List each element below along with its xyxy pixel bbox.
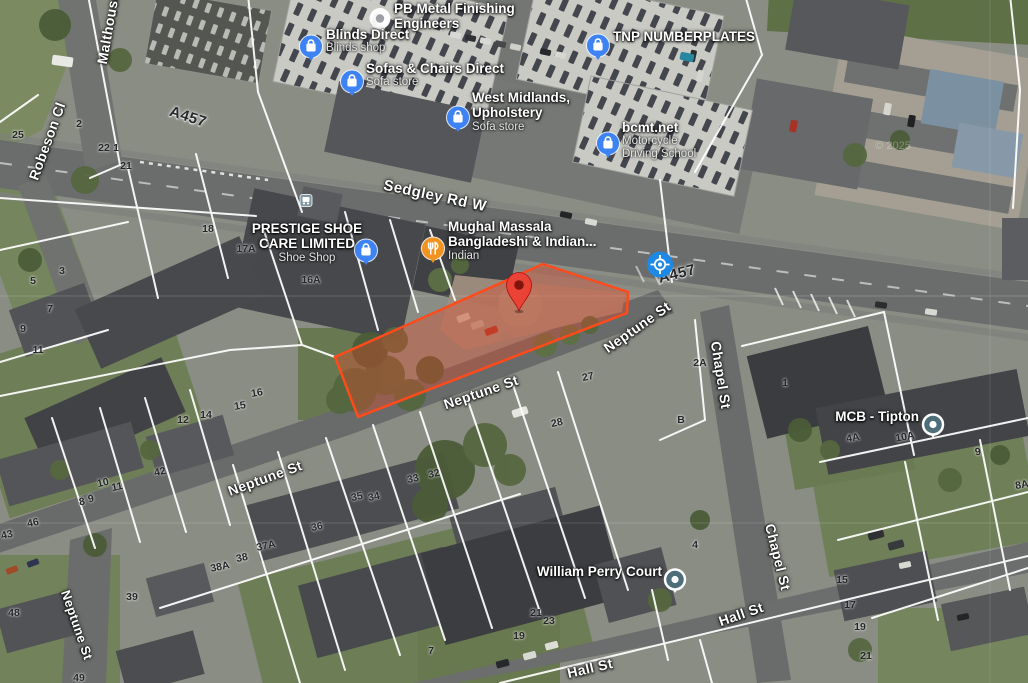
- place-label[interactable]: PRESTIGE SHOECARE LIMITEDShoe Shop: [252, 221, 362, 265]
- parcel-number: 19: [513, 630, 525, 642]
- bus-stop-icon[interactable]: [291, 178, 321, 216]
- parcel-number: 1: [782, 377, 788, 389]
- parcel-number: 16: [250, 386, 264, 400]
- parcel-number: 7: [428, 645, 434, 657]
- parcel-number: 32: [427, 467, 441, 481]
- parcel-number: 9: [974, 446, 982, 459]
- place-label[interactable]: PB Metal FinishingEngineers: [394, 1, 515, 32]
- parcel-number: 25: [12, 129, 24, 141]
- route-label: A457: [167, 103, 208, 131]
- parcel-number: 17: [844, 599, 856, 611]
- parcel-number: 49: [73, 672, 85, 683]
- parcel-number: 14: [200, 409, 212, 421]
- parcel-number: 21: [860, 650, 872, 662]
- parcel-number: 15: [836, 574, 848, 586]
- road-label: Hall St: [566, 655, 615, 681]
- parcel-number: 21: [530, 607, 542, 619]
- road-label: Malthouse: [94, 0, 122, 65]
- traffic-target-icon[interactable]: [645, 242, 675, 280]
- road-label: Neptune St: [226, 457, 305, 499]
- parcel-number: 8: [78, 496, 86, 509]
- parcel-number: 18: [202, 223, 214, 235]
- parcel-number: 12: [177, 414, 189, 426]
- parcel-number: 9: [87, 493, 95, 506]
- place-name-line: Blinds Direct: [326, 27, 409, 42]
- place-label[interactable]: TNP NUMBERPLATES: [613, 29, 755, 44]
- parcel-number: 39: [126, 591, 138, 603]
- parcel-number: 27: [581, 370, 595, 384]
- place-label[interactable]: William Perry Court: [537, 564, 662, 579]
- parcel-number: 21: [120, 160, 132, 172]
- road-label: Chapel St: [762, 522, 794, 592]
- parcel-number: B: [677, 414, 685, 426]
- place-name-line: MCB - Tipton: [835, 409, 919, 424]
- parcel-number: 5: [30, 275, 36, 287]
- place-name-line: bcmt.net: [622, 120, 696, 135]
- parcel-number: 23: [543, 615, 555, 627]
- place-name-line: Bangladeshi & Indian...: [448, 234, 597, 249]
- shopping-bag-icon[interactable]: [337, 59, 367, 97]
- parcel-number: 11: [110, 480, 123, 494]
- place-category: Sofa store: [366, 76, 504, 89]
- road-label: Hall St: [716, 599, 765, 629]
- parcel-number: 3: [59, 265, 65, 277]
- place-name-line: Sofas & Chairs Direct: [366, 61, 504, 76]
- road-label: Chapel St: [708, 340, 734, 410]
- place-name-line: PB Metal Finishing: [394, 1, 515, 16]
- parcel-number: 17A: [236, 243, 255, 255]
- parcel-number: 38A: [209, 559, 230, 575]
- shopping-bag-icon[interactable]: [583, 23, 613, 61]
- place-label[interactable]: MCB - Tipton: [835, 409, 919, 424]
- generic-pin-icon[interactable]: [918, 402, 948, 440]
- parcel-number: 2: [76, 118, 82, 130]
- parcel-number: 7: [47, 303, 53, 315]
- parcel-number: 38: [235, 551, 249, 565]
- parcel-number: 9: [20, 323, 26, 335]
- place-name-line: PRESTIGE SHOE: [252, 221, 362, 236]
- place-category: Sofa store: [472, 121, 570, 134]
- place-name-line: William Perry Court: [537, 564, 662, 579]
- parcel-number: 28: [550, 416, 564, 430]
- parcel-number: 35: [350, 490, 364, 504]
- place-category: Shoe Shop: [252, 252, 362, 265]
- place-label[interactable]: Sofas & Chairs DirectSofa store: [366, 61, 504, 89]
- shopping-bag-icon[interactable]: [593, 121, 623, 159]
- place-name-line: Engineers: [394, 16, 515, 31]
- parcel-number: 43: [0, 528, 14, 542]
- parcel-number: 37A: [255, 538, 276, 554]
- place-category: Indian: [448, 250, 597, 263]
- place-category: Motorcycle: [622, 135, 696, 148]
- parcel-number: 33: [406, 472, 420, 486]
- place-category: Blinds shop: [326, 42, 409, 55]
- parcel-number: 34: [367, 490, 381, 504]
- imagery-attribution: © 2025: [875, 140, 911, 152]
- place-category: Driving School: [622, 148, 696, 161]
- road-label: Sedgley Rd W: [382, 177, 488, 215]
- parcel-number: 46: [26, 516, 40, 530]
- road-label: Neptune St: [442, 372, 521, 412]
- generic-pin-icon[interactable]: [660, 557, 690, 595]
- place-label[interactable]: West Midlands,UpholsterySofa store: [472, 90, 570, 134]
- place-name-line: TNP NUMBERPLATES: [613, 29, 755, 44]
- road-label: Neptune St: [58, 588, 96, 662]
- restaurant-icon[interactable]: [418, 226, 448, 264]
- shopping-bag-icon[interactable]: [296, 24, 326, 62]
- parcel-number: 10A: [894, 429, 915, 444]
- parcel-number: 19: [854, 621, 866, 633]
- road-label: Robeson Cl: [25, 100, 68, 182]
- satellite-map-view[interactable]: PB Metal FinishingEngineersBlinds Direct…: [0, 0, 1028, 683]
- parcel-number: 4: [692, 539, 698, 551]
- map-label-layer: PB Metal FinishingEngineersBlinds Direct…: [0, 0, 1028, 683]
- place-label[interactable]: bcmt.netMotorcycleDriving School: [622, 120, 696, 162]
- parcel-number: 36: [310, 520, 324, 534]
- shopping-bag-icon[interactable]: [443, 95, 473, 133]
- parcel-number: 22: [98, 142, 110, 154]
- place-name-line: Upholstery: [472, 105, 570, 120]
- parcel-number: 10: [96, 476, 110, 490]
- place-name-line: Mughal Massala: [448, 219, 597, 234]
- place-label[interactable]: Blinds DirectBlinds shop: [326, 27, 409, 55]
- place-label[interactable]: Mughal MassalaBangladeshi & Indian...Ind…: [448, 219, 597, 263]
- road-label: Neptune St: [601, 298, 674, 356]
- parcel-number: 48: [8, 607, 20, 619]
- parcel-number: 15: [233, 399, 247, 413]
- parcel-number: 4A: [845, 431, 860, 445]
- parcel-number: 8A: [1014, 478, 1028, 492]
- parcel-number: 11: [32, 344, 43, 356]
- parcel-number: 2A: [693, 357, 706, 369]
- parcel-number: 16A: [301, 274, 320, 286]
- place-name-line: CARE LIMITED: [252, 236, 362, 251]
- red-map-pin[interactable]: [502, 271, 536, 315]
- place-name-line: West Midlands,: [472, 90, 570, 105]
- parcel-number: 1: [113, 142, 119, 154]
- parcel-number: 42: [153, 465, 167, 479]
